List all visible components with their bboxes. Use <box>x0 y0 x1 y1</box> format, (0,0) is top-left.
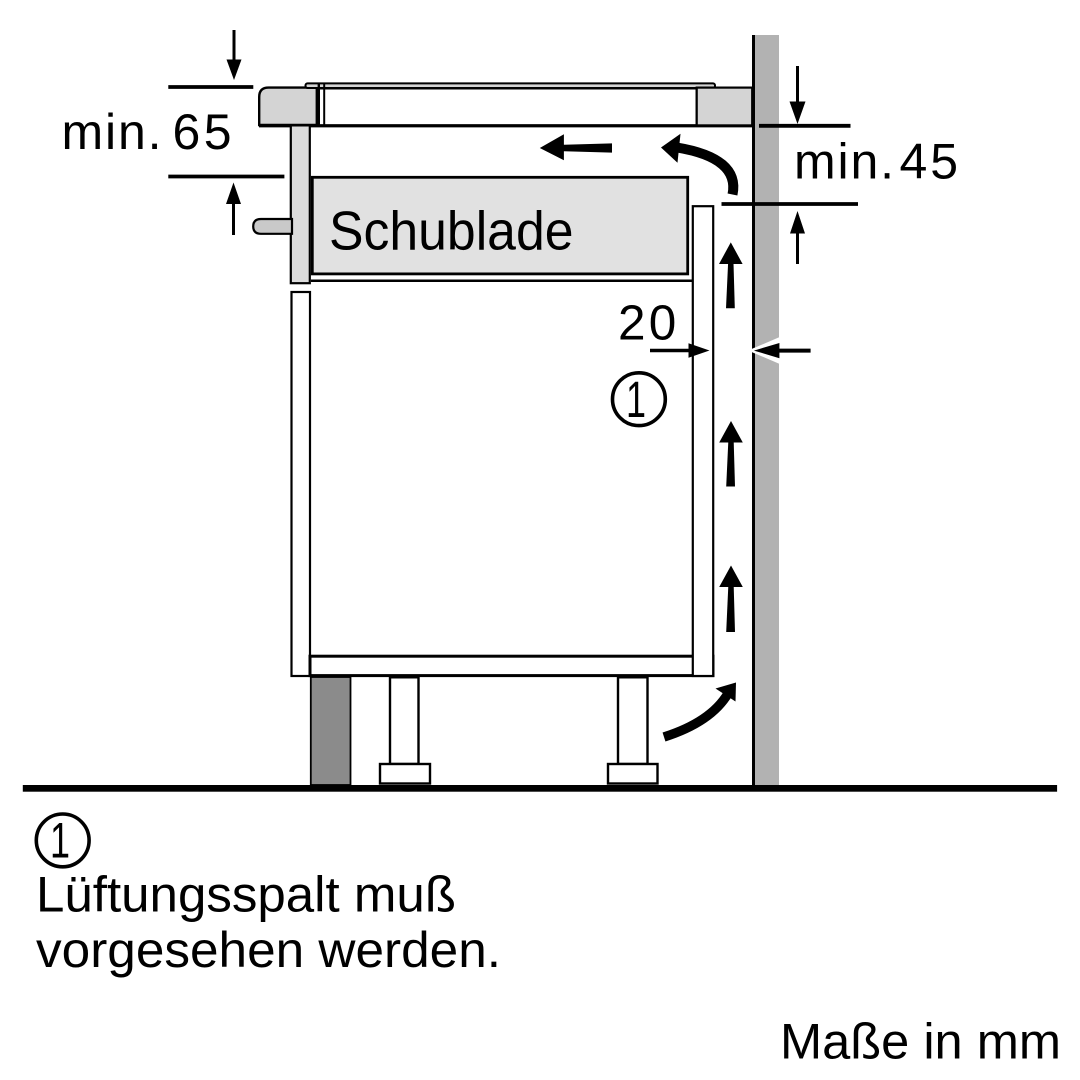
svg-text:vorgesehen werden.: vorgesehen werden. <box>36 922 501 978</box>
svg-text:1: 1 <box>50 813 70 869</box>
svg-text:Schublade: Schublade <box>329 200 574 262</box>
svg-text:Lüftungsspalt muß: Lüftungsspalt muß <box>36 867 456 923</box>
svg-text:Maße in mm: Maße in mm <box>780 1013 1061 1070</box>
svg-text:1: 1 <box>626 371 646 428</box>
